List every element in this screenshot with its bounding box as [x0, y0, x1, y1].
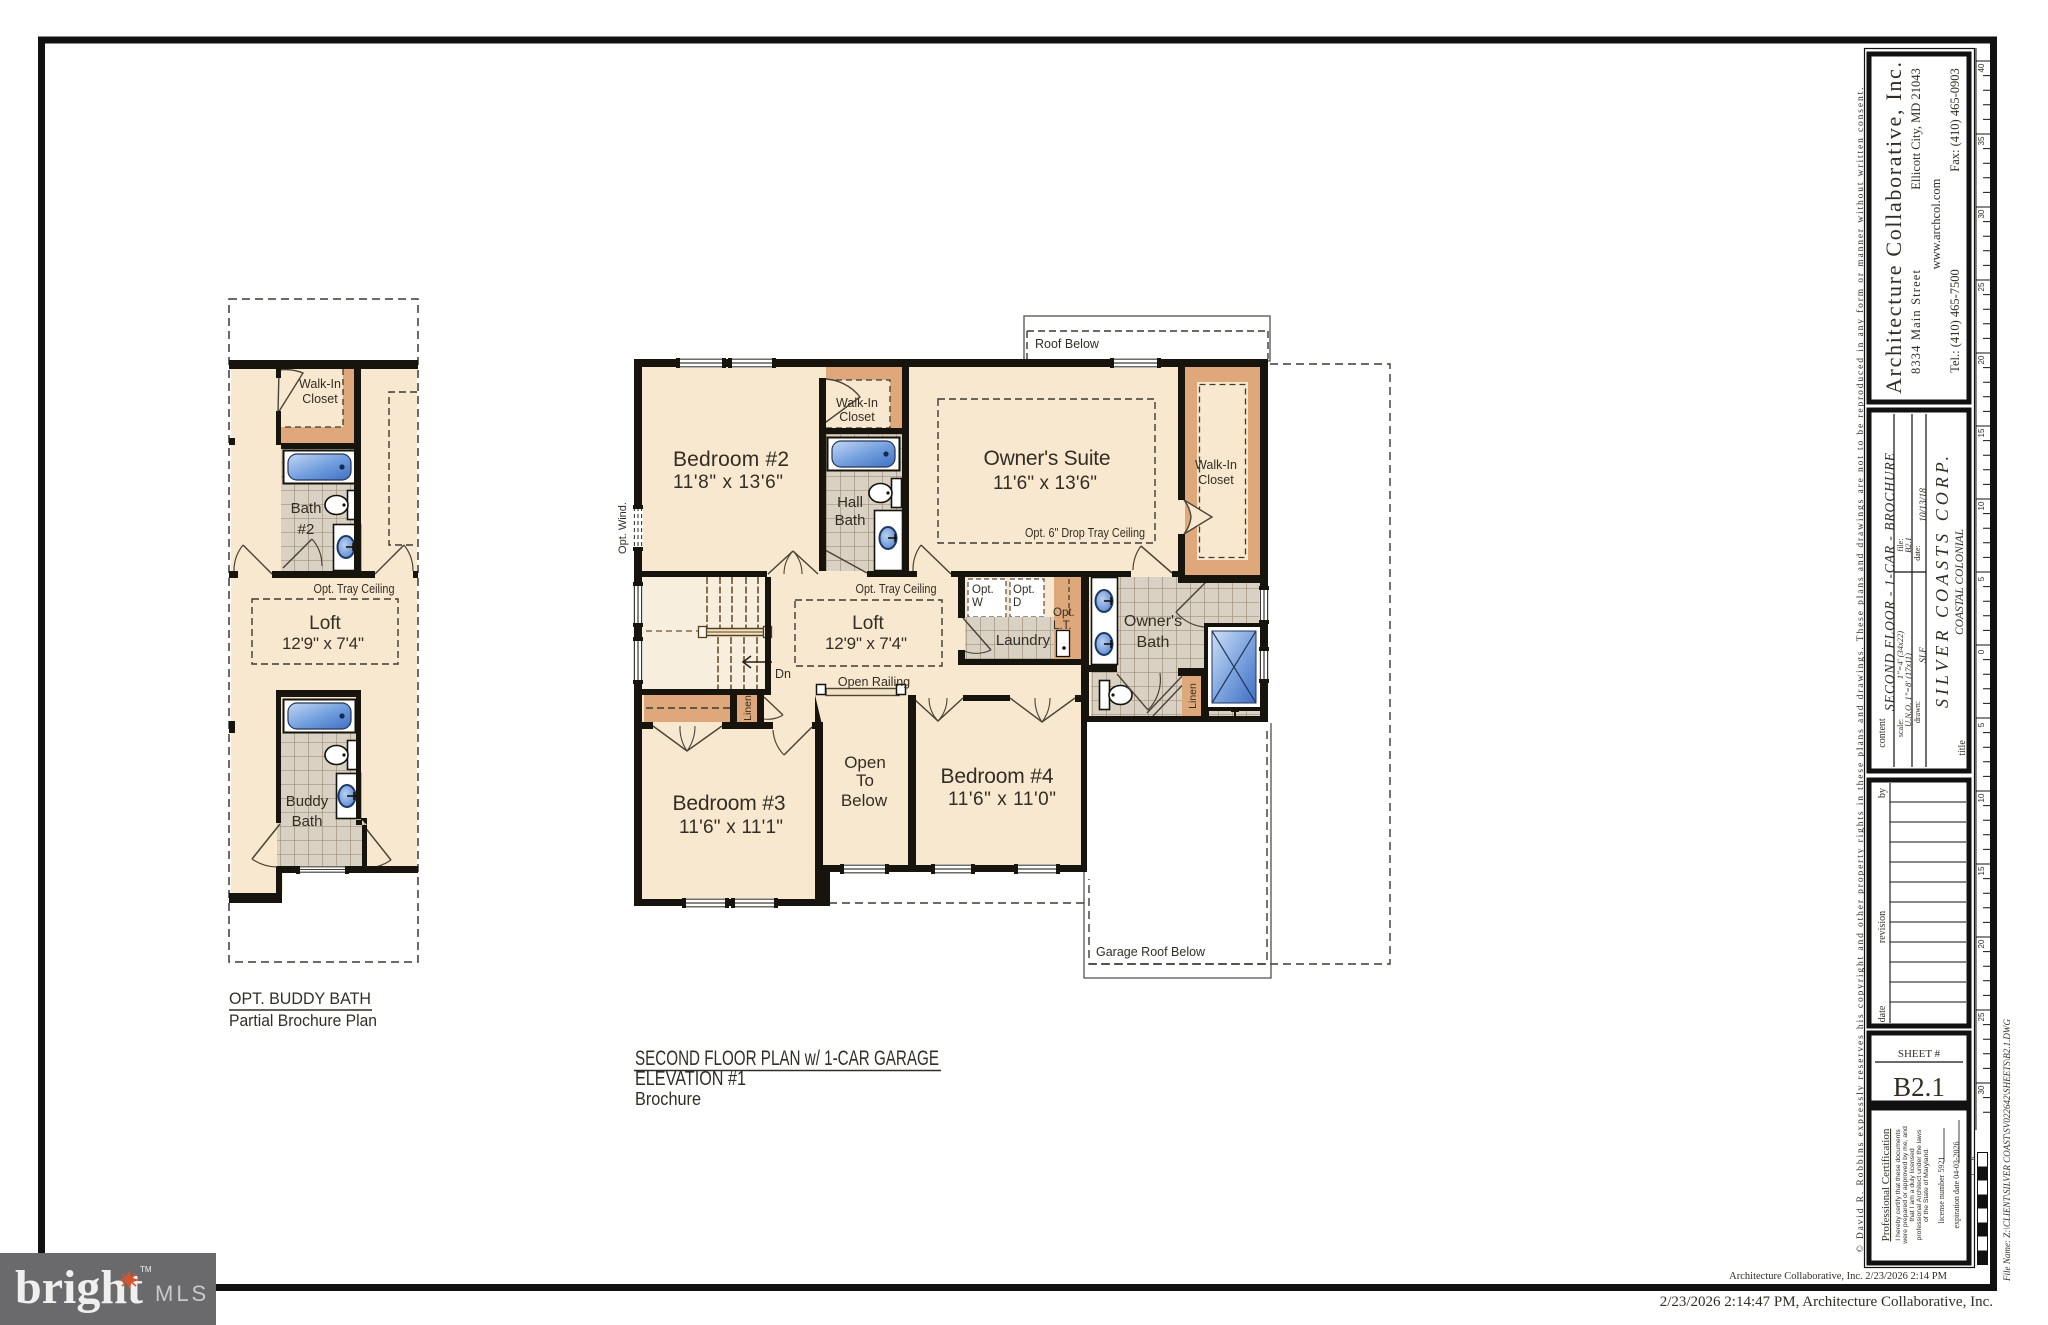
svg-text:W: W — [972, 597, 983, 609]
svg-text:Bedroom #3: Bedroom #3 — [673, 792, 786, 815]
svg-text:Linen: Linen — [1187, 683, 1199, 709]
svg-text:Owner's Suite: Owner's Suite — [984, 447, 1111, 470]
svg-text:25: 25 — [1977, 1012, 1986, 1021]
svg-text:Bedroom #4: Bedroom #4 — [941, 765, 1054, 788]
svg-text:license number 5921: license number 5921 — [1937, 1157, 1946, 1224]
svg-text:title: title — [1957, 740, 1968, 756]
svg-text:Partial Brochure Plan: Partial Brochure Plan — [229, 1011, 377, 1030]
svg-text:Laundry: Laundry — [996, 632, 1051, 649]
svg-text:Buddy: Buddy — [286, 793, 329, 810]
svg-text:12'9" x 7'4": 12'9" x 7'4" — [825, 634, 907, 653]
svg-text:Open: Open — [844, 753, 886, 772]
svg-text:Below: Below — [841, 791, 888, 810]
svg-text:Closet: Closet — [839, 410, 875, 424]
svg-text:Owner's: Owner's — [1124, 613, 1182, 630]
svg-text:10: 10 — [1977, 501, 1986, 510]
svg-text:30: 30 — [1977, 1085, 1986, 1094]
svg-text:To: To — [856, 771, 874, 790]
svg-text:2/23/2026 2:14:47 PM, Architec: 2/23/2026 2:14:47 PM, Architecture Colla… — [1660, 1294, 1993, 1310]
svg-text:11'6" x 11'1": 11'6" x 11'1" — [679, 817, 783, 838]
svg-text:Architecture Collaborative, In: Architecture Collaborative, Inc. 2/23/20… — [1729, 1271, 1947, 1282]
svg-text:20: 20 — [1977, 939, 1986, 948]
svg-text:bright: bright — [15, 1261, 143, 1314]
svg-text:11'6" x 13'6": 11'6" x 13'6" — [993, 473, 1097, 494]
svg-text:SILVER COASTS CORP.: SILVER COASTS CORP. — [1932, 456, 1952, 708]
svg-text:10/13/18: 10/13/18 — [1919, 488, 1929, 522]
svg-text:professional Architect under t: professional Architect under the laws — [1916, 1129, 1923, 1240]
svg-text:1": 1" — [1969, 1170, 1977, 1177]
svg-text:0: 0 — [1977, 649, 1986, 654]
svg-text:SLF: SLF — [1919, 647, 1929, 663]
svg-text:date:: date: — [1913, 545, 1922, 561]
svg-text:B2.1: B2.1 — [1893, 1072, 1945, 1102]
svg-text:date: date — [1877, 1005, 1888, 1022]
svg-text:Opt.: Opt. — [1053, 607, 1075, 619]
svg-text:40: 40 — [1977, 63, 1986, 72]
svg-text:revision: revision — [1877, 911, 1888, 943]
svg-text:5: 5 — [1977, 576, 1986, 581]
svg-text:that I am a duly licensed: that I am a duly licensed — [1909, 1148, 1916, 1222]
svg-text:MLS: MLS — [155, 1281, 209, 1306]
svg-text:20: 20 — [1977, 355, 1986, 364]
svg-text:#2: #2 — [298, 521, 315, 538]
svg-text:Walk-In: Walk-In — [299, 377, 341, 391]
svg-text:Walk-In: Walk-In — [836, 396, 878, 410]
svg-text:11'8" x 13'6": 11'8" x 13'6" — [673, 472, 783, 493]
svg-text:10: 10 — [1977, 793, 1986, 802]
svg-text:www.archcol.com: www.archcol.com — [1929, 178, 1943, 269]
svg-text:TM: TM — [140, 1265, 152, 1274]
svg-text:Architecture Collaborative,: Architecture Collaborative, Inc. — [1881, 62, 1906, 394]
svg-text:ELEVATION #1: ELEVATION #1 — [635, 1068, 746, 1090]
svg-text:Bath: Bath — [1137, 634, 1170, 651]
svg-text:Opt.: Opt. — [972, 584, 994, 596]
svg-text:Dn: Dn — [775, 667, 791, 681]
svg-text:Loft: Loft — [309, 613, 341, 634]
svg-text:Bedroom #2: Bedroom #2 — [673, 448, 789, 471]
svg-text:35: 35 — [1977, 136, 1986, 145]
svg-text:12'9" x 7'4": 12'9" x 7'4" — [282, 634, 364, 653]
svg-text:15: 15 — [1977, 428, 1986, 437]
svg-text:Bath: Bath — [835, 512, 866, 529]
svg-text:OPT. BUDDY BATH: OPT. BUDDY BATH — [229, 989, 371, 1008]
svg-text:Roof Below: Roof Below — [1035, 337, 1100, 351]
svg-text:content: content — [1877, 718, 1888, 748]
svg-text:30: 30 — [1977, 209, 1986, 218]
svg-text:expiration date 04-03-2026: expiration date 04-03-2026 — [1952, 1141, 1961, 1228]
svg-text:Tel.: (410) 465-7500: Tel.: (410) 465-7500 — [1948, 269, 1962, 373]
svg-text:Opt. Tray Ceiling: Opt. Tray Ceiling — [314, 581, 395, 596]
svg-text:6": 6" — [1969, 1154, 1977, 1161]
svg-text:COASTAL COLONIAL: COASTAL COLONIAL — [1954, 529, 1966, 635]
svg-text:Linen: Linen — [742, 695, 754, 721]
svg-text:Opt. Wind.: Opt. Wind. — [617, 502, 629, 554]
svg-text:File Name: Z:\CLIENT\SILVER: File Name: Z:\CLIENT\SILVER COAST\SV0226… — [2003, 1019, 2013, 1282]
svg-text:Brochure: Brochure — [635, 1089, 701, 1109]
svg-text:Opt. 6" Drop Tray Ceiling: Opt. 6" Drop Tray Ceiling — [1025, 526, 1145, 540]
svg-text:11'6" x 11'0": 11'6" x 11'0" — [948, 789, 1056, 810]
svg-text:Professional Certification: Professional Certification — [1880, 1128, 1892, 1241]
svg-text:Loft: Loft — [852, 613, 884, 634]
svg-text:Opt. Tray Ceiling: Opt. Tray Ceiling — [856, 581, 937, 596]
svg-text:Closet: Closet — [1198, 473, 1234, 487]
svg-text:25: 25 — [1977, 282, 1986, 291]
svg-text:Walk-In: Walk-In — [1195, 458, 1237, 472]
svg-text:drawn:: drawn: — [1913, 701, 1922, 723]
svg-text:by: by — [1877, 788, 1888, 798]
svg-text:Closet: Closet — [302, 392, 338, 406]
svg-text:were prepared or approved by m: were prepared or approved by me, and — [1902, 1126, 1909, 1245]
svg-text:SECOND FLOOR PLAN w/ 1-CAR GAR: SECOND FLOOR PLAN w/ 1-CAR GARAGE — [635, 1047, 939, 1070]
svg-text:Garage Roof Below: Garage Roof Below — [1096, 945, 1206, 959]
svg-text:8334 Main Street: 8334 Main Street — [1909, 269, 1923, 374]
svg-text:SHEET #: SHEET # — [1898, 1048, 1941, 1060]
svg-text:Opt.: Opt. — [1013, 584, 1035, 596]
svg-text:Bath: Bath — [291, 500, 322, 517]
svg-text:15: 15 — [1977, 866, 1986, 875]
svg-text:5: 5 — [1977, 722, 1986, 727]
svg-text:Open Railing: Open Railing — [838, 675, 910, 689]
svg-text:D: D — [1013, 597, 1021, 609]
svg-text:Fax: (410) 465-0903: Fax: (410) 465-0903 — [1948, 68, 1962, 171]
svg-text:of the State of Maryland.: of the State of Maryland. — [1923, 1148, 1930, 1222]
svg-text:Hall: Hall — [837, 494, 863, 511]
svg-text:Bath: Bath — [292, 813, 323, 830]
svg-text:I hereby certify that these do: I hereby certify that these documents — [1895, 1129, 1902, 1241]
svg-text:Ellicott City, MD 21043: Ellicott City, MD 21043 — [1909, 68, 1923, 189]
